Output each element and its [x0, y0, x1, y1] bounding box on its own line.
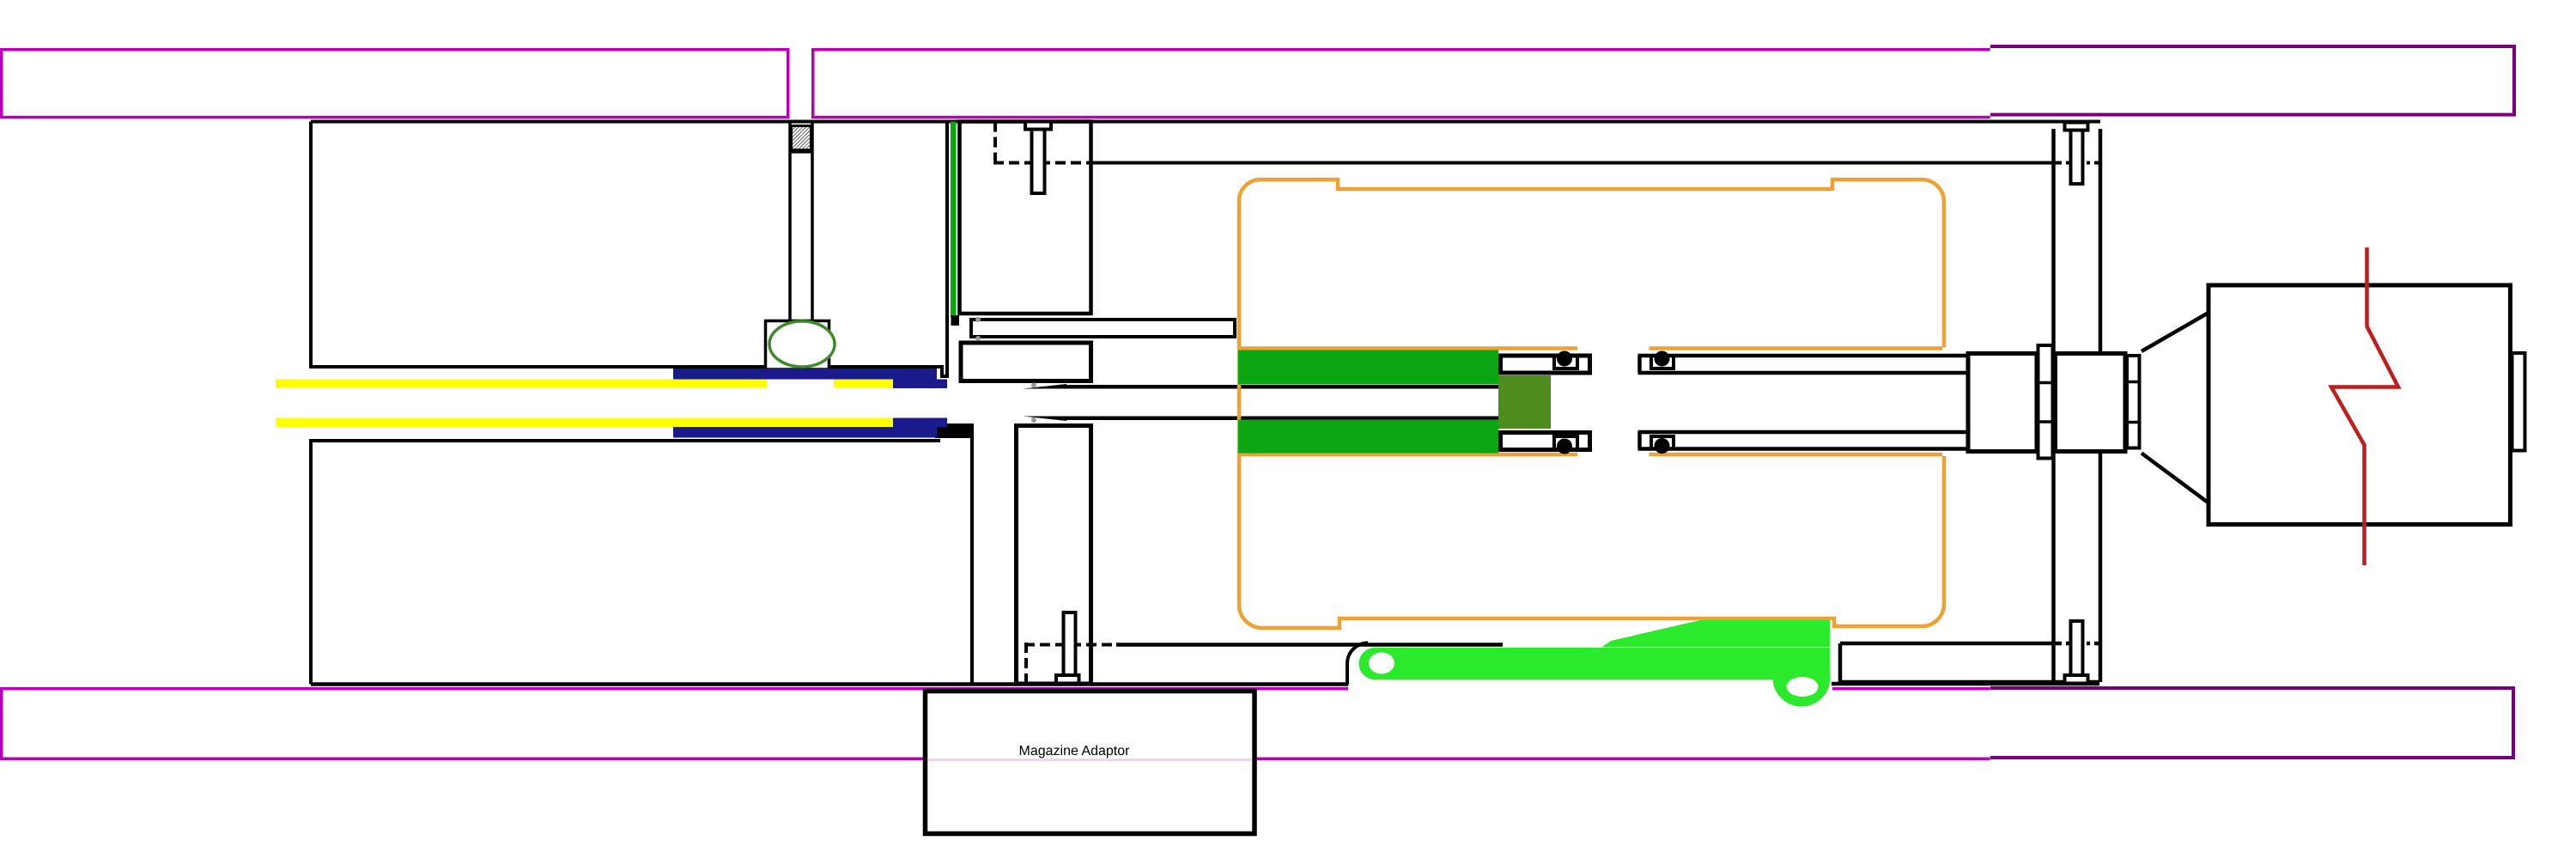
svg-text:Magazine Adaptor: Magazine Adaptor: [1019, 744, 1131, 758]
